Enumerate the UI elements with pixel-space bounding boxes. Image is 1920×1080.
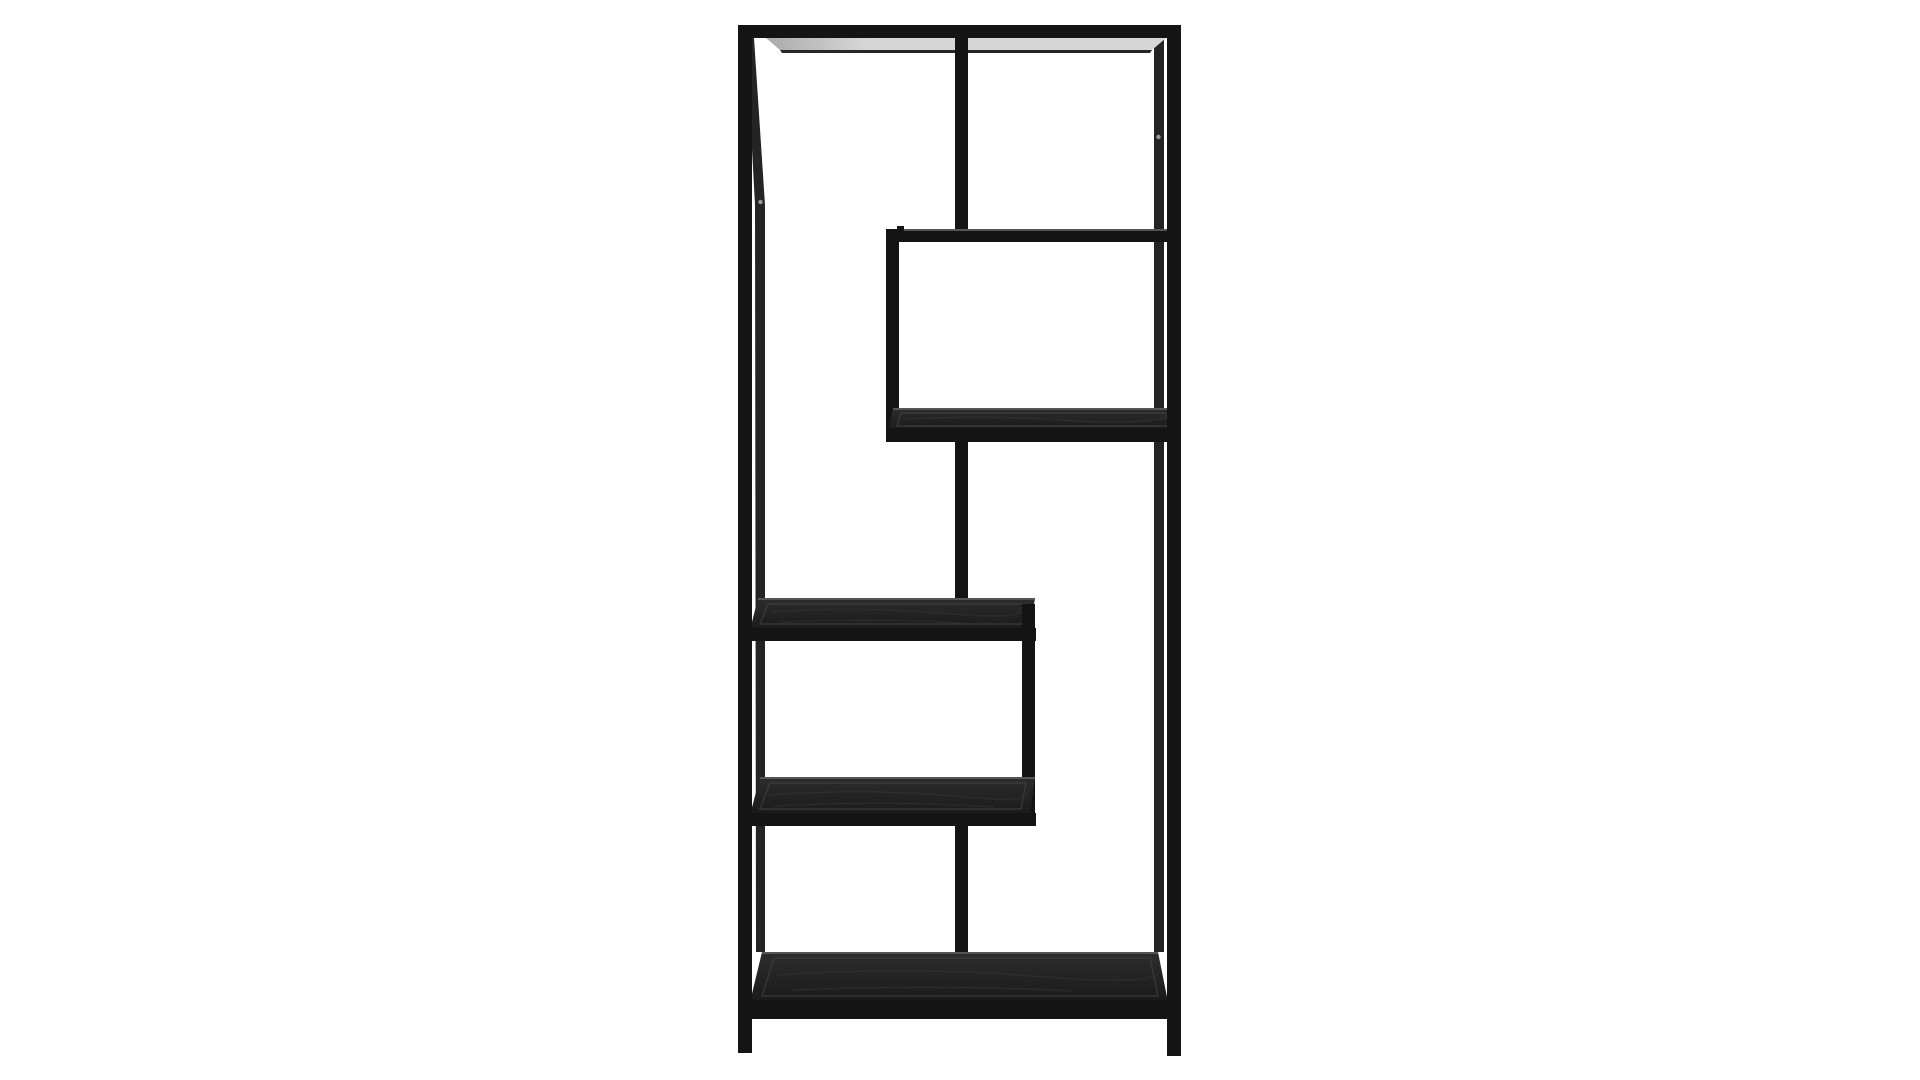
shelf-b-apron [888,428,1181,442]
shelf-d-apron [750,813,1036,826]
bottom-shelf-top [750,952,1168,1002]
bookshelf-illustration [0,0,1920,1080]
mid-divider-middle [955,442,968,614]
shelf-c-apron [750,628,1036,641]
product-photo-canvas [0,0,1920,1080]
back-right-post [1154,38,1164,952]
screw-dot-left [758,200,762,204]
front-left-post [738,25,752,1053]
screw-dot-right [1156,135,1160,139]
front-right-post [1167,25,1181,1056]
mid-divider-upper [955,36,968,233]
bottom-shelf-rail [738,1000,1181,1019]
top-beam [738,25,1181,38]
shelf-c-top [750,598,1035,630]
shelf-a [886,231,1168,242]
